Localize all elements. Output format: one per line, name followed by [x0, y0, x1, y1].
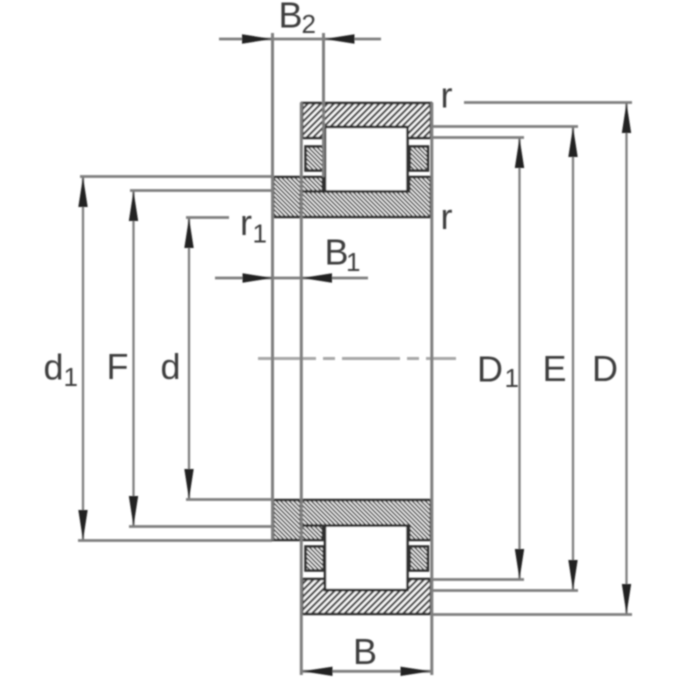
svg-text:r: r [441, 196, 453, 237]
svg-text:1: 1 [253, 219, 267, 249]
svg-text:E: E [543, 348, 567, 389]
svg-text:B: B [279, 0, 303, 36]
svg-text:1: 1 [346, 247, 360, 277]
svg-text:r: r [240, 202, 252, 243]
svg-text:d: d [161, 346, 181, 387]
svg-text:D: D [592, 348, 618, 389]
svg-text:r: r [441, 75, 453, 116]
svg-text:F: F [107, 346, 129, 387]
svg-text:d: d [44, 347, 64, 388]
svg-text:B: B [353, 631, 377, 672]
svg-text:D: D [477, 349, 503, 390]
svg-text:1: 1 [505, 363, 519, 393]
svg-text:B: B [325, 232, 349, 273]
svg-text:2: 2 [302, 9, 316, 39]
svg-text:1: 1 [64, 362, 78, 392]
